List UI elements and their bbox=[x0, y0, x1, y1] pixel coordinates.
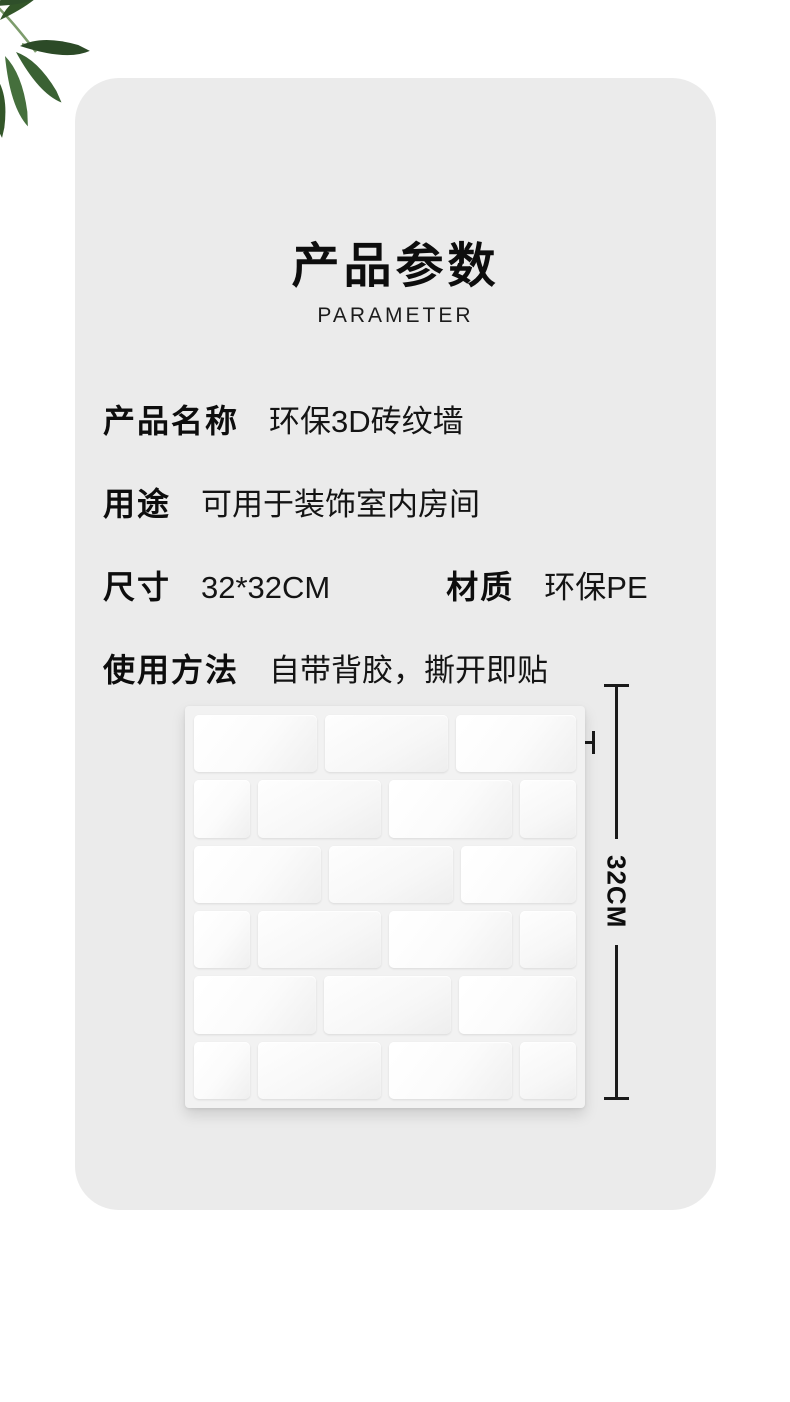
brick-tile bbox=[194, 780, 250, 837]
brick-tile bbox=[194, 1042, 250, 1099]
spec-pair: 使用方法自带背胶，撕开即贴 bbox=[103, 645, 548, 691]
spec-pair: 材质环保PE bbox=[446, 562, 647, 608]
spec-value: 可用于装饰室内房间 bbox=[201, 479, 480, 524]
brick-tile bbox=[194, 715, 317, 772]
spec-label: 材质 bbox=[446, 562, 514, 608]
parameter-card: 产品参数 PARAMETER 产品名称环保3D砖纹墙用途可用于装饰室内房间尺寸3… bbox=[75, 78, 716, 1210]
dimension-cap-bottom bbox=[604, 1097, 629, 1100]
brick-tile bbox=[389, 1042, 512, 1099]
height-dimension: 32CM bbox=[602, 684, 630, 1100]
brick-tile bbox=[194, 911, 250, 968]
brick-tile bbox=[194, 976, 316, 1033]
product-panel-image bbox=[185, 706, 585, 1108]
spec-row: 使用方法自带背胶，撕开即贴 bbox=[103, 645, 688, 691]
spec-label: 用途 bbox=[103, 479, 171, 525]
dimension-tick-right bbox=[592, 731, 595, 754]
brick-tile bbox=[324, 976, 451, 1033]
spec-list: 产品名称环保3D砖纹墙用途可用于装饰室内房间尺寸32*32CM材质环保PE使用方… bbox=[103, 396, 688, 728]
spec-pair: 产品名称环保3D砖纹墙 bbox=[103, 396, 464, 442]
dimension-line bbox=[615, 945, 618, 1097]
brick-tile bbox=[459, 976, 576, 1033]
spec-value: 环保PE bbox=[544, 562, 647, 607]
brick-tile bbox=[389, 780, 512, 837]
brick-row bbox=[194, 846, 576, 903]
brick-tile bbox=[520, 780, 576, 837]
brick-tile bbox=[325, 715, 448, 772]
spec-value: 环保3D砖纹墙 bbox=[269, 396, 464, 441]
product-parameter-page: 产品参数 PARAMETER 产品名称环保3D砖纹墙用途可用于装饰室内房间尺寸3… bbox=[0, 0, 790, 1402]
brick-tile bbox=[461, 846, 576, 903]
brick-tile bbox=[456, 715, 576, 772]
brick-tile bbox=[329, 846, 453, 903]
brick-tile bbox=[194, 846, 321, 903]
brick-tile bbox=[520, 911, 576, 968]
spec-pair: 用途可用于装饰室内房间 bbox=[103, 479, 480, 525]
spec-row: 用途可用于装饰室内房间 bbox=[103, 479, 688, 525]
dimension-line bbox=[615, 687, 618, 839]
spec-label: 尺寸 bbox=[103, 562, 171, 608]
brick-row bbox=[194, 1042, 576, 1099]
spec-label: 产品名称 bbox=[103, 396, 239, 442]
height-dimension-label: 32CM bbox=[601, 839, 632, 944]
brick-tile bbox=[258, 1042, 381, 1099]
brick-tile bbox=[389, 911, 512, 968]
spec-label: 使用方法 bbox=[103, 645, 239, 691]
spec-pair: 尺寸32*32CM bbox=[103, 562, 330, 608]
brick-row bbox=[194, 976, 576, 1033]
brick-tile bbox=[258, 780, 381, 837]
spec-row: 产品名称环保3D砖纹墙 bbox=[103, 396, 688, 442]
brick-tile bbox=[258, 911, 381, 968]
brick-tile bbox=[520, 1042, 576, 1099]
brick-row bbox=[194, 911, 576, 968]
brick-row bbox=[194, 780, 576, 837]
spec-value: 32*32CM bbox=[201, 570, 330, 606]
brick-row bbox=[194, 715, 576, 772]
spec-value: 自带背胶，撕开即贴 bbox=[269, 645, 548, 690]
spec-row: 尺寸32*32CM材质环保PE bbox=[103, 562, 688, 608]
section-subtitle-en: PARAMETER bbox=[75, 304, 716, 328]
section-title: 产品参数 bbox=[75, 226, 716, 296]
